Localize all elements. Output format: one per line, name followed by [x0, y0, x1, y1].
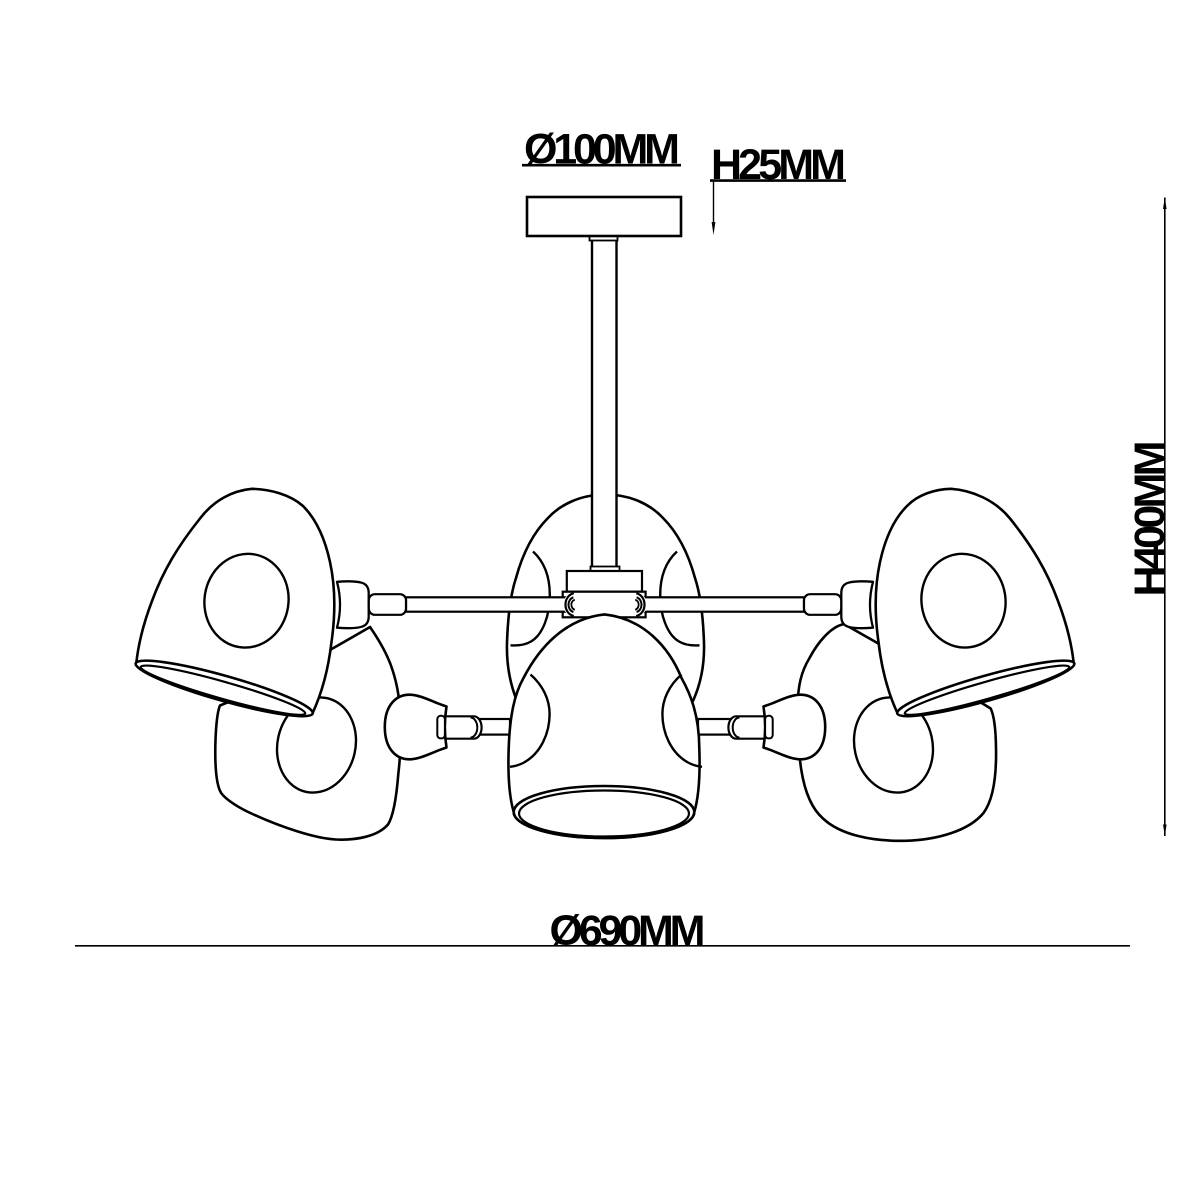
svg-text:H400MM: H400MM	[1126, 441, 1174, 597]
svg-text:Ø690MM: Ø690MM	[550, 907, 706, 955]
